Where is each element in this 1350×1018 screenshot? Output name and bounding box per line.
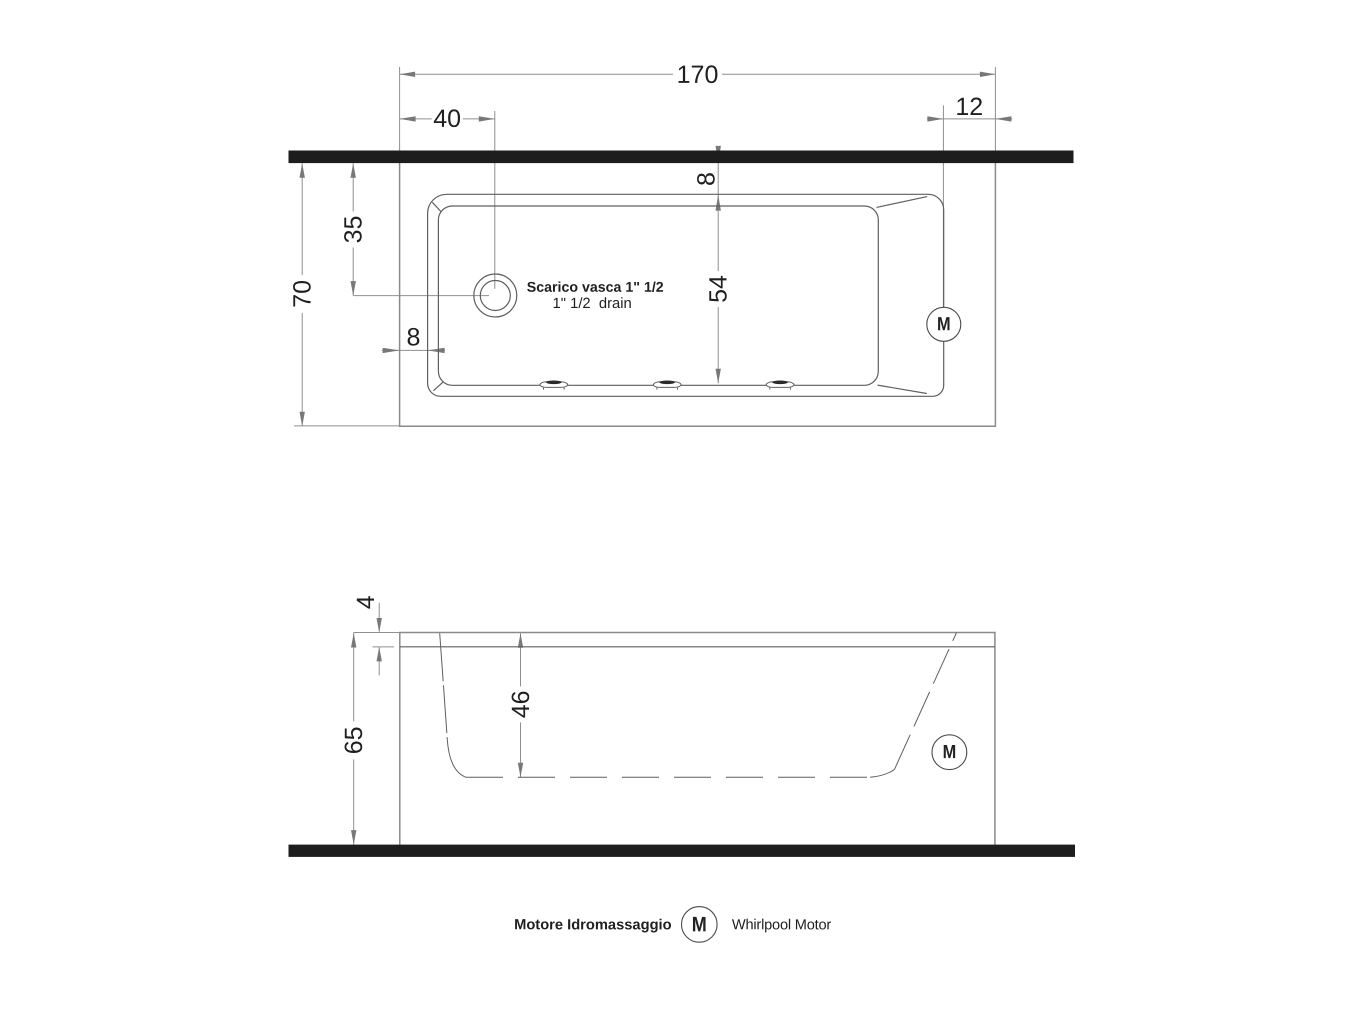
svg-text:M: M — [692, 913, 707, 936]
svg-text:8: 8 — [407, 323, 421, 351]
svg-text:40: 40 — [433, 105, 461, 133]
svg-text:65: 65 — [340, 726, 368, 754]
svg-text:70: 70 — [289, 280, 317, 308]
svg-text:1" 1/2 drain: 1" 1/2 drain — [552, 296, 631, 312]
svg-text:Scarico vasca 1" 1/2: Scarico vasca 1" 1/2 — [527, 280, 664, 296]
svg-text:Motore Idromassaggio: Motore Idromassaggio — [514, 917, 672, 933]
svg-text:8: 8 — [693, 172, 721, 186]
svg-text:M: M — [943, 742, 957, 763]
svg-text:170: 170 — [677, 61, 719, 89]
svg-text:M: M — [937, 314, 951, 335]
svg-text:54: 54 — [705, 275, 733, 303]
svg-text:46: 46 — [507, 690, 535, 718]
svg-text:35: 35 — [340, 216, 368, 244]
svg-text:12: 12 — [955, 93, 983, 121]
svg-text:4: 4 — [352, 595, 380, 609]
svg-text:Whirlpool Motor: Whirlpool Motor — [732, 917, 832, 933]
